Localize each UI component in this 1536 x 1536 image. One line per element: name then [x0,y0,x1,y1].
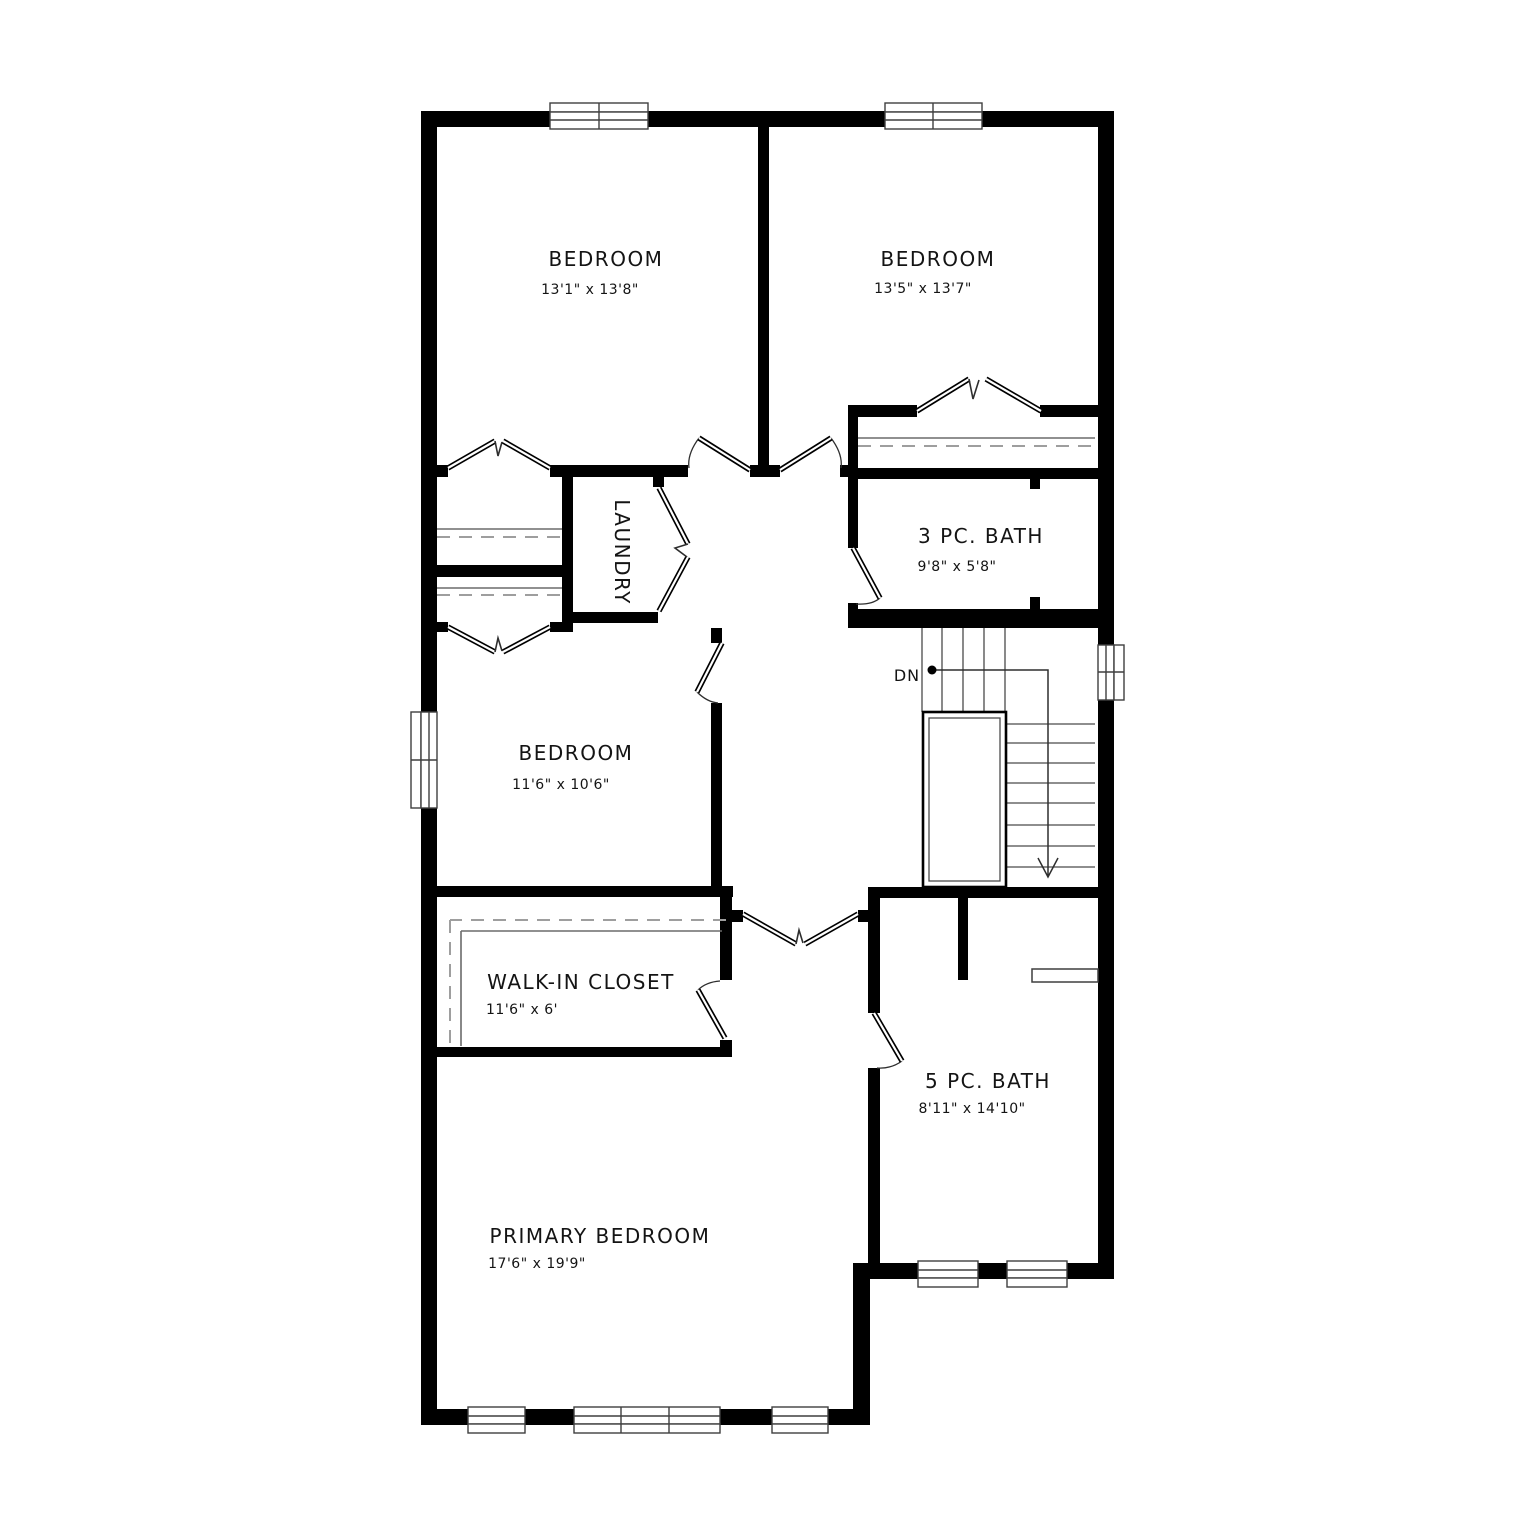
room-name: BEDROOM [549,247,664,271]
stair-void [923,712,1006,887]
window-primary-a [468,1407,525,1433]
window-bedroom2 [885,103,982,129]
room-label-bedroom-top-left: BEDROOM 13'1" x 13'8" [541,247,663,298]
staircase [922,628,1095,887]
room-label-bath-3pc: 3 PC. BATH 9'8" x 5'8" [918,524,1044,575]
stair-direction-dot [928,666,937,675]
room-dims: 13'1" x 13'8" [541,282,639,298]
room-label-laundry: LAUNDRY [610,499,634,605]
window-stairs [1098,645,1124,700]
wall-bath5-bottom [853,1263,1114,1279]
room-label-bedroom-middle: BEDROOM 11'6" x 10'6" [512,741,633,793]
room-dims: 11'6" x 10'6" [512,777,610,793]
room-label-primary-bedroom: PRIMARY BEDROOM 17'6" x 19'9" [488,1224,710,1272]
room-dims: 8'11" x 14'10" [918,1101,1025,1117]
room-dims: 13'5" x 13'7" [874,281,972,297]
room-label-bedroom-top-right: BEDROOM 13'5" x 13'7" [874,247,995,297]
room-label-bath-5pc: 5 PC. BATH 8'11" x 14'10" [918,1069,1051,1117]
window-bedroom3 [411,712,437,808]
room-label-walk-in-closet: WALK-IN CLOSET 11'6" x 6' [486,970,675,1018]
room-dims: 11'6" x 6' [486,1002,558,1018]
room-name: PRIMARY BEDROOM [490,1224,711,1248]
floor-plan: BEDROOM 13'1" x 13'8" BEDROOM 13'5" x 13… [0,0,1536,1536]
wall-exterior-se-vertical [853,1263,870,1425]
stairs-down-label: DN [894,666,920,685]
room-name: BEDROOM [519,741,634,765]
room-dims: 9'8" x 5'8" [918,559,997,575]
window-primary-b [574,1407,720,1433]
room-name: WALK-IN CLOSET [487,970,675,994]
window-bath5-b [1007,1261,1067,1287]
window-bedroom1 [550,103,648,129]
window-primary-c [772,1407,828,1433]
room-name: 3 PC. BATH [918,524,1044,548]
wall-exterior-top [421,111,1114,127]
room-name: 5 PC. BATH [925,1069,1051,1093]
wall-bedroom-divider [758,127,769,465]
window-bath5-a [918,1261,978,1287]
room-dims: 17'6" x 19'9" [488,1256,586,1272]
room-name: BEDROOM [881,247,996,271]
room-name: LAUNDRY [610,499,634,605]
bath5-shelf [1032,969,1098,982]
